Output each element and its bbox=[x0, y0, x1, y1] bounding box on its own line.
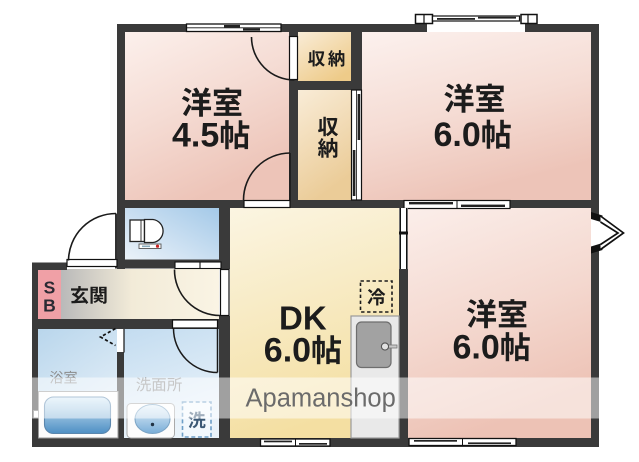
svg-text:S: S bbox=[44, 278, 56, 298]
svg-text:Apamanshop: Apamanshop bbox=[246, 385, 396, 413]
svg-text:4.5: 4.5 bbox=[172, 117, 219, 155]
svg-text:6.0: 6.0 bbox=[264, 332, 311, 370]
svg-text:6.0: 6.0 bbox=[453, 329, 500, 367]
svg-text:6.0: 6.0 bbox=[434, 116, 481, 154]
svg-text:B: B bbox=[43, 296, 56, 316]
